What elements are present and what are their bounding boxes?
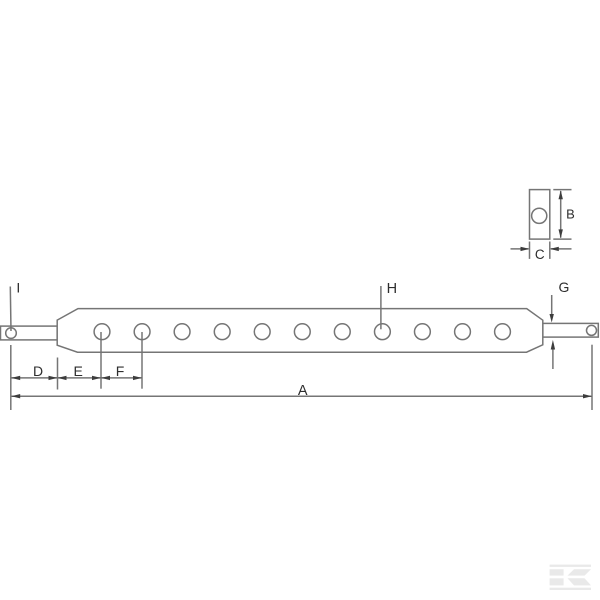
svg-text:E: E (74, 363, 83, 379)
svg-text:D: D (33, 363, 43, 379)
svg-text:F: F (116, 363, 125, 379)
svg-text:I: I (16, 280, 20, 296)
svg-text:G: G (559, 279, 570, 295)
svg-text:B: B (566, 207, 575, 222)
svg-text:H: H (387, 281, 397, 297)
svg-text:A: A (298, 383, 308, 399)
svg-text:C: C (535, 247, 545, 262)
